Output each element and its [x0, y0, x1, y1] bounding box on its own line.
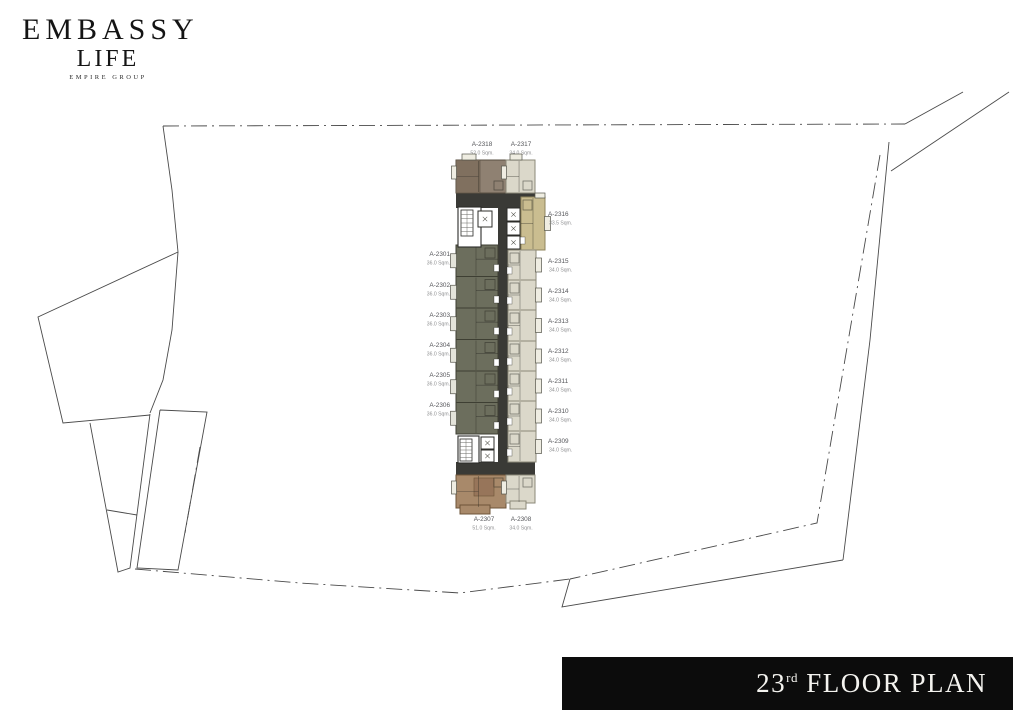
unit-label-A-2318: A-2318	[472, 141, 493, 148]
unit-A-2312: A-231234.0 Sqm.	[507, 341, 572, 371]
boundary-line	[570, 155, 880, 579]
stairs-icon	[460, 439, 472, 461]
unit-A-2315: A-231534.0 Sqm.	[507, 250, 572, 280]
elevator-icon	[507, 222, 520, 235]
unit-label-A-2302: A-2302	[429, 282, 450, 289]
boundary-line	[562, 560, 843, 607]
unit-label-A-2313: A-2313	[548, 318, 569, 325]
balcony	[536, 319, 542, 333]
bathroom	[510, 344, 519, 354]
balcony	[452, 481, 457, 494]
balcony	[536, 349, 542, 363]
balcony	[536, 440, 542, 454]
unit-A-2318: A-231852.0 Sqm.	[452, 141, 507, 193]
unit-A-2302: A-230236.0 Sqm.	[427, 277, 499, 309]
floor-plan-title: 23rd FLOOR PLAN	[756, 668, 987, 699]
bathroom	[510, 283, 519, 293]
unit-label-A-2308: A-2308	[511, 516, 532, 523]
boundary-line	[150, 126, 178, 413]
unit-A-2307: A-230751.0 Sqm.	[452, 475, 507, 532]
boundary-line	[163, 124, 905, 126]
unit-area-label-A-2310: 34.0 Sqm.	[549, 418, 572, 424]
elevator-icon	[481, 437, 494, 449]
door	[494, 359, 499, 366]
unit-A-2311: A-231134.0 Sqm.	[507, 371, 572, 401]
unit-A-2305: A-230536.0 Sqm.	[427, 371, 499, 403]
balcony	[510, 154, 522, 160]
unit-label-A-2311: A-2311	[548, 378, 569, 385]
unit-A-2314: A-231434.0 Sqm.	[507, 280, 572, 310]
unit-area-label-A-2306: 36.0 Sqm.	[427, 412, 450, 418]
bathroom	[510, 253, 519, 263]
bathroom	[523, 181, 532, 190]
site-plan-drawing: A-231852.0 Sqm.A-231734.0 Sqm.A-231633.5…	[0, 0, 1016, 718]
door	[507, 328, 512, 335]
bathroom	[494, 181, 503, 190]
boundary-line	[38, 252, 178, 423]
unit-area-step	[460, 505, 490, 514]
boundary-line	[90, 414, 150, 572]
balcony	[536, 409, 542, 423]
unit-label-A-2309: A-2309	[548, 438, 569, 445]
balcony	[536, 288, 542, 302]
building: A-231852.0 Sqm.A-231734.0 Sqm.A-231633.5…	[427, 141, 572, 532]
unit-room	[474, 478, 494, 496]
bathroom	[510, 434, 519, 444]
unit-A-2310: A-231034.0 Sqm.	[507, 401, 572, 431]
door	[494, 296, 499, 303]
unit-label-A-2315: A-2315	[548, 258, 569, 265]
door	[507, 267, 512, 274]
unit-label-A-2316: A-2316	[548, 211, 569, 218]
door	[507, 449, 512, 456]
unit-area-label-A-2309: 34.0 Sqm.	[549, 448, 572, 454]
unit-area-label-A-2308: 34.0 Sqm.	[509, 526, 532, 532]
unit-A-2308: A-230834.0 Sqm.	[502, 475, 536, 532]
unit-A-2309: A-230934.0 Sqm.	[507, 431, 572, 462]
unit-area-label-A-2304: 36.0 Sqm.	[427, 352, 450, 358]
balcony	[502, 166, 507, 179]
bathroom	[510, 313, 519, 323]
bathroom	[510, 374, 519, 384]
unit-label-A-2306: A-2306	[429, 402, 450, 409]
door	[494, 391, 499, 398]
bathroom	[523, 200, 532, 210]
door	[507, 388, 512, 395]
unit-label-A-2317: A-2317	[511, 141, 532, 148]
bathroom	[485, 311, 495, 321]
elevator-icon	[481, 450, 494, 462]
unit-area-label-A-2305: 36.0 Sqm.	[427, 382, 450, 388]
bathroom	[523, 478, 532, 487]
floor-plan-banner: 23rd FLOOR PLAN	[562, 657, 1013, 710]
balcony	[451, 380, 457, 394]
door	[494, 328, 499, 335]
unit-area-label-A-2301: 36.0 Sqm.	[427, 261, 450, 267]
unit-area-label-A-2313: 34.0 Sqm.	[549, 328, 572, 334]
unit-area-step	[510, 501, 526, 509]
bathroom	[485, 406, 495, 416]
balcony	[451, 317, 457, 331]
unit-A-2306: A-230636.0 Sqm.	[427, 402, 499, 434]
floor-plan-page: EMBASSY LIFE EMPIRE GROUP A-231852.0 Sqm…	[0, 0, 1016, 718]
unit-A-2303: A-230336.0 Sqm.	[427, 308, 499, 340]
door	[520, 237, 525, 244]
corridor	[456, 462, 535, 475]
unit-area-label-A-2307: 51.0 Sqm.	[472, 526, 495, 532]
door	[507, 358, 512, 365]
balcony	[502, 481, 507, 494]
unit-label-A-2305: A-2305	[429, 372, 450, 379]
stairs-icon	[461, 210, 473, 236]
balcony	[452, 166, 457, 179]
unit-label-A-2312: A-2312	[548, 348, 569, 355]
unit-A-2313: A-231334.0 Sqm.	[507, 310, 572, 341]
elevator-icon	[478, 211, 492, 227]
unit-label-A-2307: A-2307	[474, 516, 495, 523]
boundary-line	[905, 92, 963, 124]
door	[494, 265, 499, 272]
unit-A-2304: A-230436.0 Sqm.	[427, 340, 499, 372]
unit-label-A-2303: A-2303	[429, 312, 450, 319]
unit-A-2317: A-231734.0 Sqm.	[502, 141, 536, 193]
unit-area-label-A-2311: 34.0 Sqm.	[549, 388, 572, 394]
unit-label-A-2310: A-2310	[548, 408, 569, 415]
balcony	[462, 154, 476, 160]
door	[494, 422, 499, 429]
boundary-line	[107, 510, 137, 515]
bathroom	[485, 374, 495, 384]
balcony	[451, 411, 457, 425]
balcony	[451, 254, 457, 268]
unit-area-label-A-2302: 36.0 Sqm.	[427, 292, 450, 298]
balcony	[451, 348, 457, 362]
elevator-icon	[507, 236, 520, 249]
unit-area-label-A-2314: 34.0 Sqm.	[549, 298, 572, 304]
bathroom	[485, 280, 495, 290]
boundary-line	[891, 92, 1009, 171]
balcony	[535, 193, 545, 198]
boundary-line	[843, 142, 889, 560]
unit-area-label-A-2315: 34.0 Sqm.	[549, 268, 572, 274]
unit-label-A-2314: A-2314	[548, 288, 569, 295]
unit-area-label-A-2312: 34.0 Sqm.	[549, 358, 572, 364]
bathroom	[485, 248, 495, 258]
bathroom	[485, 343, 495, 353]
boundary-line	[135, 569, 570, 593]
balcony	[536, 258, 542, 272]
door	[507, 297, 512, 304]
balcony	[536, 379, 542, 393]
unit-A-2316: A-231633.5 Sqm.	[520, 197, 572, 250]
balcony	[451, 285, 457, 299]
bathroom	[510, 404, 519, 414]
door	[507, 418, 512, 425]
unit-A-2301: A-230136.0 Sqm.	[427, 245, 499, 277]
elevator-icon	[507, 208, 520, 221]
unit-label-A-2301: A-2301	[429, 251, 450, 258]
unit-area-label-A-2303: 36.0 Sqm.	[427, 322, 450, 328]
unit-label-A-2304: A-2304	[429, 342, 450, 349]
unit-area-label-A-2316: 33.5 Sqm.	[549, 221, 572, 227]
